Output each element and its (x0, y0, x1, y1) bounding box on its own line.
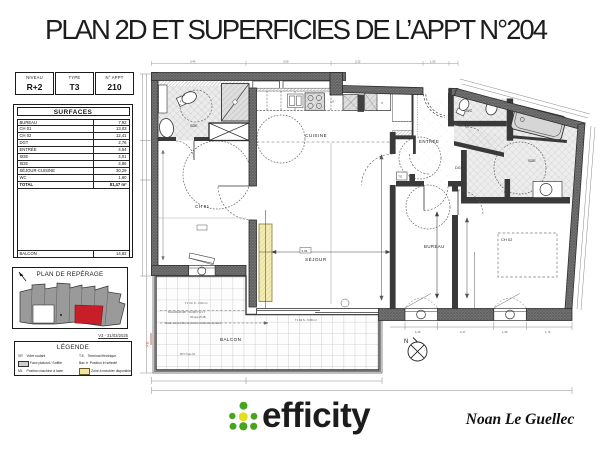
svg-text:T1 VC S - 3,84 m²: T1 VC S - 3,84 m² (185, 301, 208, 305)
svg-text:14,82: 14,82 (147, 341, 150, 348)
svg-text:2,17: 2,17 (460, 330, 466, 334)
svg-text:CUISINE: CUISINE (305, 133, 327, 138)
svg-text:SDE: SDE (528, 159, 536, 163)
svg-text:1,53: 1,53 (430, 60, 436, 64)
svg-text:DGT: DGT (455, 166, 464, 170)
svg-text:SÉJOUR: SÉJOUR (305, 256, 327, 262)
svg-text:1,26: 1,26 (415, 330, 421, 334)
svg-text:T.E.: T.E. (398, 175, 403, 179)
svg-text:BALCON: BALCON (220, 337, 241, 342)
svg-text:T1 84 S - 5,58 m²: T1 84 S - 5,58 m² (295, 318, 317, 322)
svg-text:1,26: 1,26 (502, 330, 508, 334)
svg-text:LV: LV (331, 100, 334, 104)
svg-text:2,22: 2,22 (355, 60, 361, 64)
svg-text:ENTRÉE: ENTRÉE (419, 139, 439, 144)
svg-text:MACADAM GBT T10-609 T12 LT: MACADAM GBT T10-609 T12 LT (168, 311, 205, 314)
svg-text:BUREAU: BUREAU (424, 244, 445, 249)
svg-text:1,74: 1,74 (545, 330, 551, 334)
svg-text:3,06: 3,06 (302, 249, 308, 253)
svg-text:3,09: 3,09 (283, 60, 289, 64)
svg-text:Garde-corps à fixer du point d: Garde-corps à fixer du point de référenc… (165, 322, 221, 325)
svg-text:WC: WC (466, 109, 473, 113)
svg-text:MTC Type 02: MTC Type 02 (180, 353, 196, 356)
svg-text:SDE: SDE (190, 124, 198, 128)
svg-text:N: N (404, 339, 408, 345)
svg-text:CH 02: CH 02 (501, 237, 513, 242)
svg-text:3,43: 3,43 (190, 60, 196, 64)
svg-text:VR app 25 dB: VR app 25 dB (190, 316, 206, 319)
svg-text:V: V (381, 101, 383, 105)
svg-text:CH 01: CH 01 (195, 204, 210, 209)
